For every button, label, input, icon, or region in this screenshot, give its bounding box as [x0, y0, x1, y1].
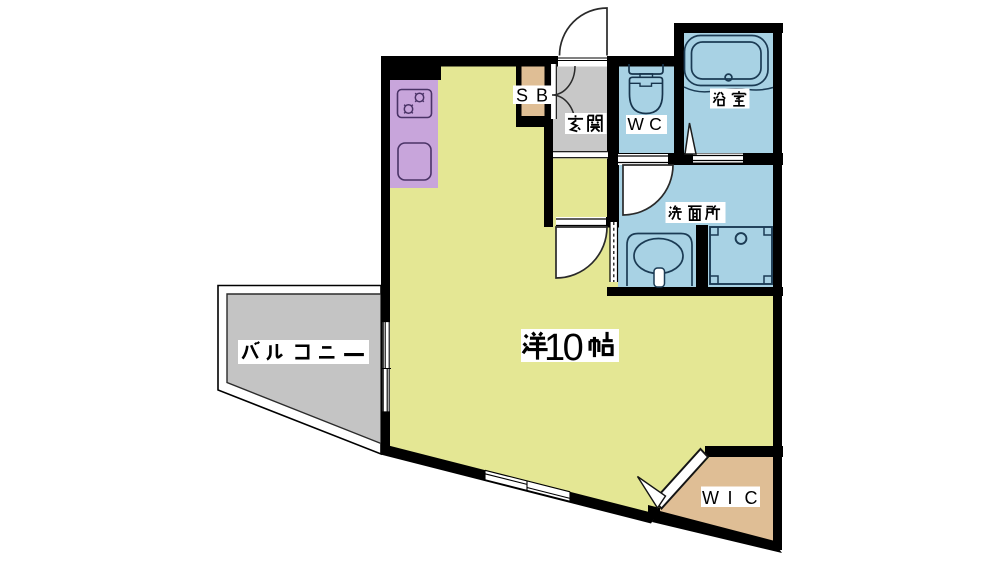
svg-text:C: C	[649, 114, 662, 134]
svg-text:I: I	[727, 488, 732, 508]
svg-text:B: B	[536, 86, 548, 106]
svg-text:W: W	[702, 488, 719, 508]
svg-text:W: W	[627, 114, 644, 134]
svg-text:S: S	[516, 86, 528, 106]
svg-text:10: 10	[544, 327, 583, 369]
svg-text:C: C	[745, 488, 758, 508]
